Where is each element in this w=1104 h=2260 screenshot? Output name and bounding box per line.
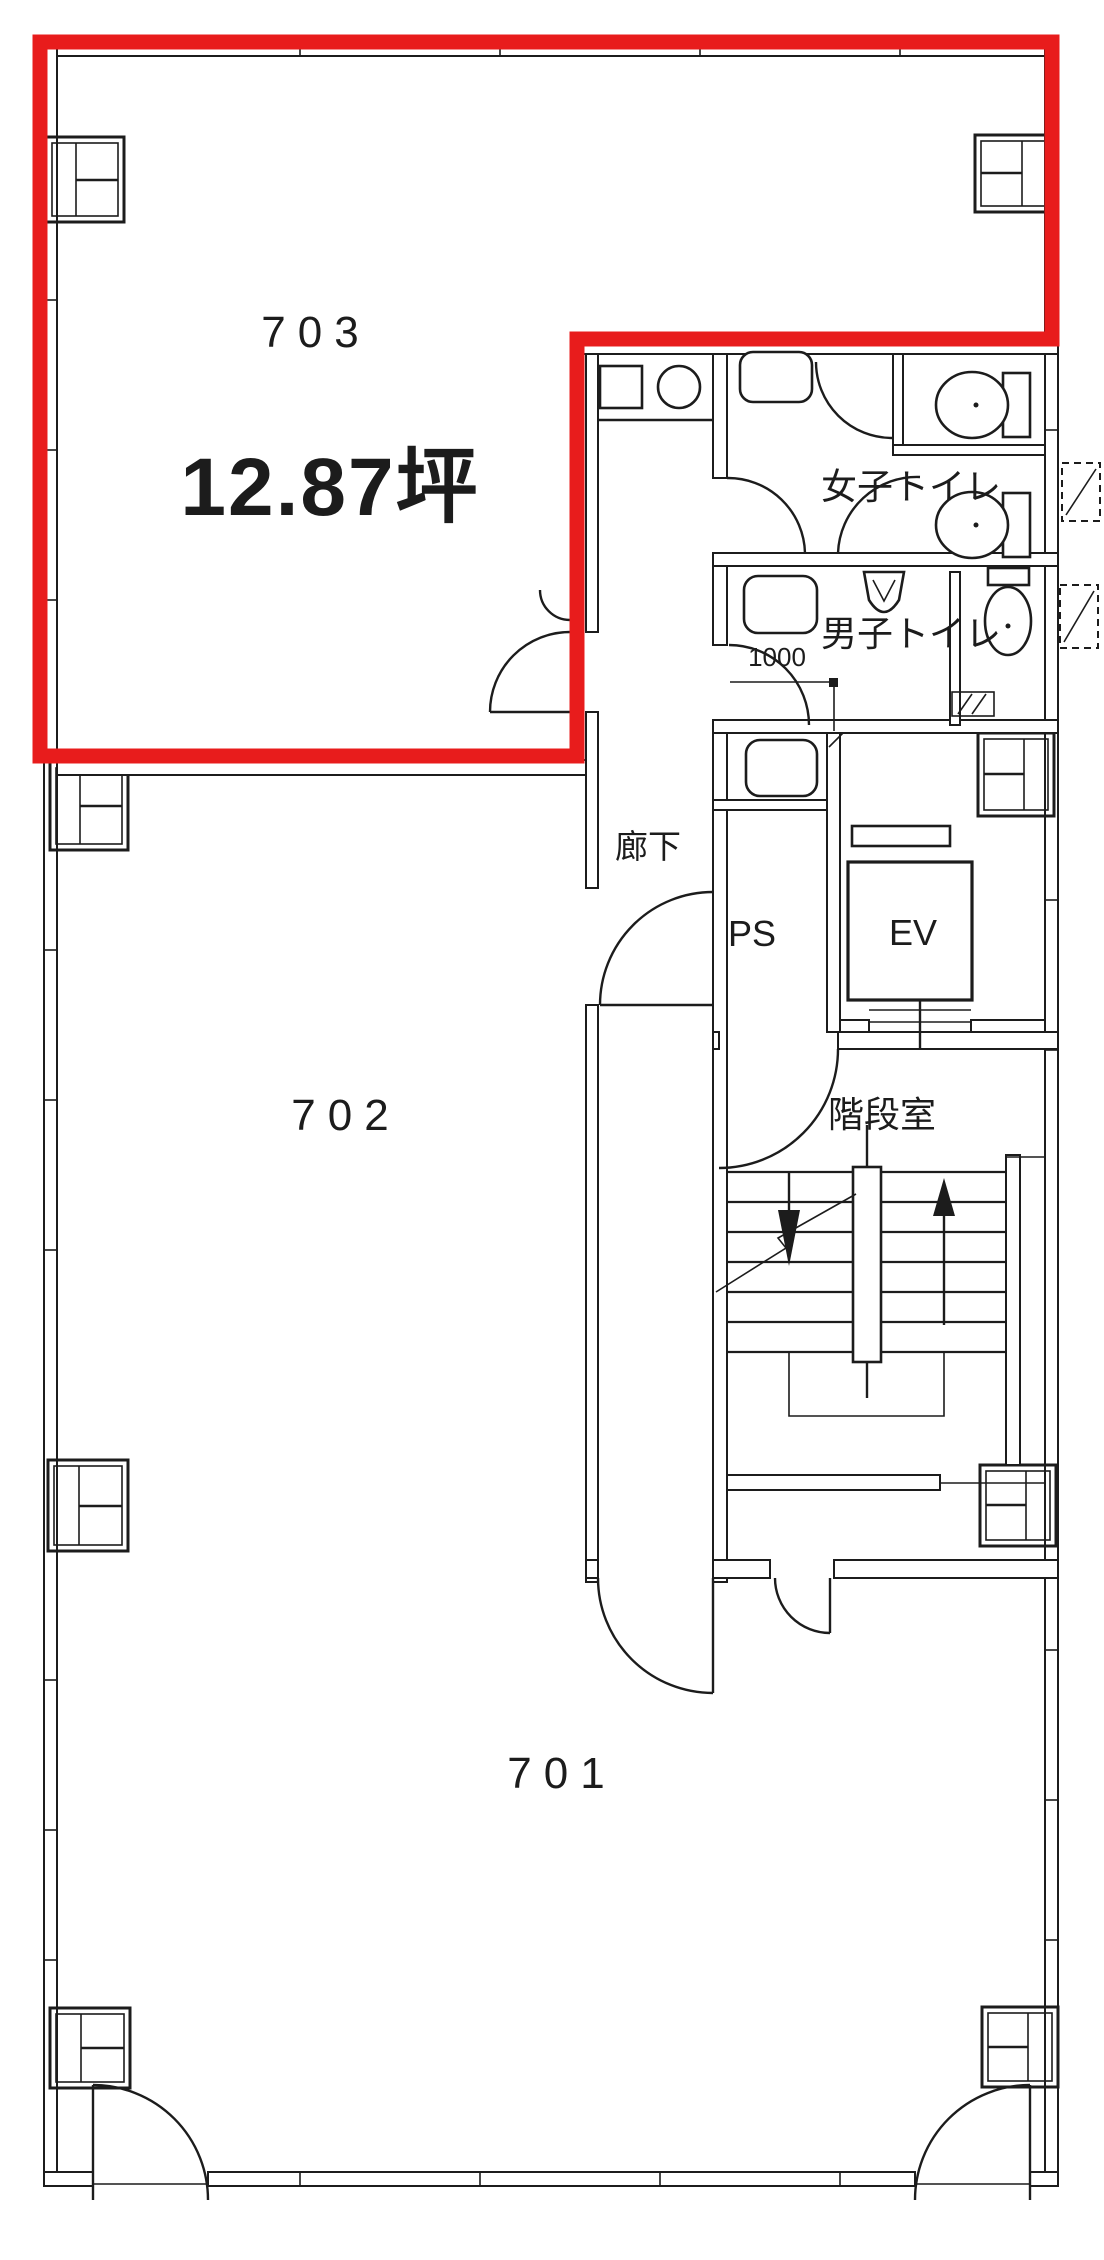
toilet-symbol-womens-1	[936, 372, 1030, 438]
bottom-wall-center	[208, 2172, 915, 2186]
elevator-label: EV	[889, 912, 937, 953]
door-stair-room	[719, 1049, 838, 1168]
floor-plan-drawing: 703 12.87坪 702 701 廊下 PS EV 階段室 女子トイレ 男子…	[0, 0, 1104, 2260]
corridor-left-wall-2	[586, 712, 598, 888]
door-landing-to-701	[775, 1578, 830, 1633]
door-703-closet	[540, 590, 570, 620]
door-701-bottom-right	[915, 2085, 1030, 2200]
right-wall	[1045, 46, 1058, 2186]
ev-shaft-bottom-2	[971, 1020, 1045, 1032]
corridor-left-wall-3	[586, 1005, 598, 1582]
dashed-unit-1	[1062, 463, 1100, 521]
ev-counterweight	[852, 826, 950, 846]
area-label-703: 12.87坪	[180, 442, 479, 533]
stair-up-arrow-icon	[933, 1178, 955, 1325]
door-womens-stall-1	[816, 362, 892, 438]
kitchen-sink-symbol	[600, 366, 642, 408]
corridor-right-wall-3	[713, 725, 727, 1582]
door-703-entrance	[490, 632, 570, 712]
elevator-shaft	[829, 733, 972, 1049]
wall-stair-top-left	[713, 1032, 719, 1049]
kitchen-basin-symbol	[658, 366, 700, 408]
stair-room-label: 階段室	[828, 1094, 936, 1135]
mens-toilet-label: 男子トイレ	[821, 613, 1001, 654]
womens-toilet-label: 女子トイレ	[821, 466, 1001, 507]
mens-vanity-symbol	[744, 576, 817, 633]
corridor-right-wall-1	[713, 354, 727, 478]
urinal-symbol	[864, 572, 904, 612]
wall-stair-top	[838, 1032, 1058, 1049]
dimension-label-1000: 1000	[748, 642, 806, 672]
wall-core-bottom-stub	[586, 1560, 598, 1578]
corridor-left-wall-1	[586, 354, 598, 632]
window-box-bottom-left	[50, 2008, 130, 2088]
kitchenette-counter	[598, 366, 713, 420]
floor-plan-sheet: 703 12.87坪 702 701 廊下 PS EV 階段室 女子トイレ 男子…	[0, 0, 1104, 2260]
wall-core-bottom-1	[713, 1560, 770, 1578]
womens-vanity-symbol	[740, 352, 812, 402]
womens-stall-divider	[893, 445, 1045, 455]
window-box-top-right	[975, 135, 1052, 212]
pipe-space-label: PS	[728, 913, 776, 954]
stair-down-arrow-icon	[778, 1172, 800, 1266]
room-label-703: 703	[261, 308, 370, 357]
wall-nook-bottom	[713, 800, 840, 810]
dashed-unit-2	[1060, 585, 1098, 648]
stair-landing-wall	[727, 1475, 940, 1490]
room-label-701: 701	[507, 1749, 616, 1798]
door-corridor-to-701	[598, 1578, 713, 1693]
door-701-bottom-left	[93, 2085, 208, 2200]
womens-stall-partition	[893, 354, 903, 445]
room-label-702: 702	[291, 1091, 400, 1140]
exterior-dashed-units	[1060, 463, 1100, 648]
door-702-entrance	[600, 892, 713, 1005]
wall-core-bottom-2	[834, 1560, 1058, 1578]
bottom-wall-left	[44, 2172, 93, 2186]
door-womens-entrance	[727, 478, 805, 553]
stairs	[716, 1125, 1006, 1416]
ev-shaft-left-wall	[827, 733, 840, 1032]
utility-sink-symbol	[746, 740, 817, 796]
stair-center-rail	[853, 1167, 881, 1362]
wall-mens-bottom	[713, 720, 1058, 733]
window-box-left-3	[48, 1460, 128, 1551]
corridor-label: 廊下	[615, 828, 681, 865]
window-box-right-2	[978, 733, 1054, 816]
stair-right-inner-wall	[1006, 1155, 1020, 1465]
ev-shaft-bottom-1	[840, 1020, 869, 1032]
corridor-right-wall-2	[713, 556, 727, 645]
bottom-wall-right	[1030, 2172, 1058, 2186]
